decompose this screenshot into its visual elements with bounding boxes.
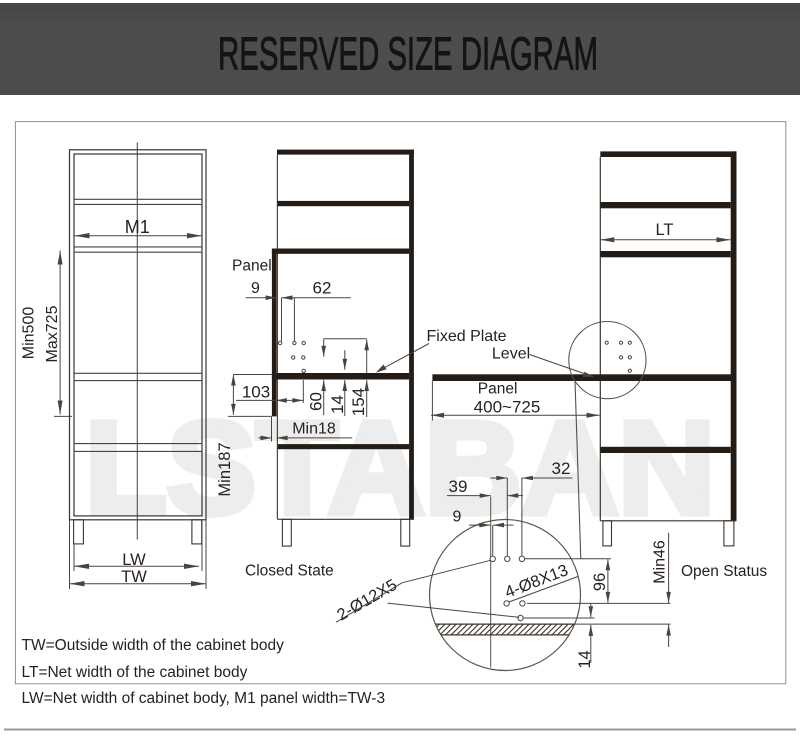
svg-text:Open Status: Open Status — [681, 563, 767, 580]
svg-text:RESERVED SIZE DIAGRAM: RESERVED SIZE DIAGRAM — [218, 28, 598, 80]
svg-text:Min46: Min46 — [652, 540, 669, 584]
svg-text:M1: M1 — [125, 217, 150, 237]
svg-text:39: 39 — [449, 477, 468, 496]
svg-text:103: 103 — [242, 383, 270, 402]
svg-text:Panel: Panel — [232, 258, 272, 275]
svg-text:Min187: Min187 — [216, 442, 234, 496]
svg-text:4-Ø8X13: 4-Ø8X13 — [502, 561, 570, 601]
svg-text:Level: Level — [492, 346, 530, 363]
svg-text:9: 9 — [251, 280, 260, 297]
svg-text:60: 60 — [307, 392, 326, 411]
svg-text:Min500: Min500 — [21, 307, 38, 360]
svg-text:Fixed Plate: Fixed Plate — [427, 328, 507, 345]
svg-text:Max725: Max725 — [44, 305, 61, 362]
svg-text:32: 32 — [552, 459, 571, 478]
svg-text:62: 62 — [313, 279, 332, 298]
svg-text:Panel: Panel — [478, 381, 518, 398]
svg-text:Closed State: Closed State — [245, 563, 334, 580]
svg-text:96: 96 — [591, 573, 609, 591]
svg-text:LT: LT — [655, 221, 673, 239]
svg-text:154: 154 — [349, 388, 368, 416]
svg-text:LW=Net width of cabinet body,: LW=Net width of cabinet body, M1 panel w… — [22, 690, 386, 707]
svg-text:LT=Net width of the cabinet bo: LT=Net width of the cabinet body — [22, 664, 248, 681]
svg-text:9: 9 — [453, 509, 462, 526]
svg-text:TW=Outside width of the cabine: TW=Outside width of the cabinet body — [22, 637, 285, 654]
svg-text:14: 14 — [328, 395, 347, 414]
svg-text:400~725: 400~725 — [474, 398, 541, 417]
svg-text:14: 14 — [576, 650, 594, 668]
svg-text:Min18: Min18 — [292, 421, 336, 438]
